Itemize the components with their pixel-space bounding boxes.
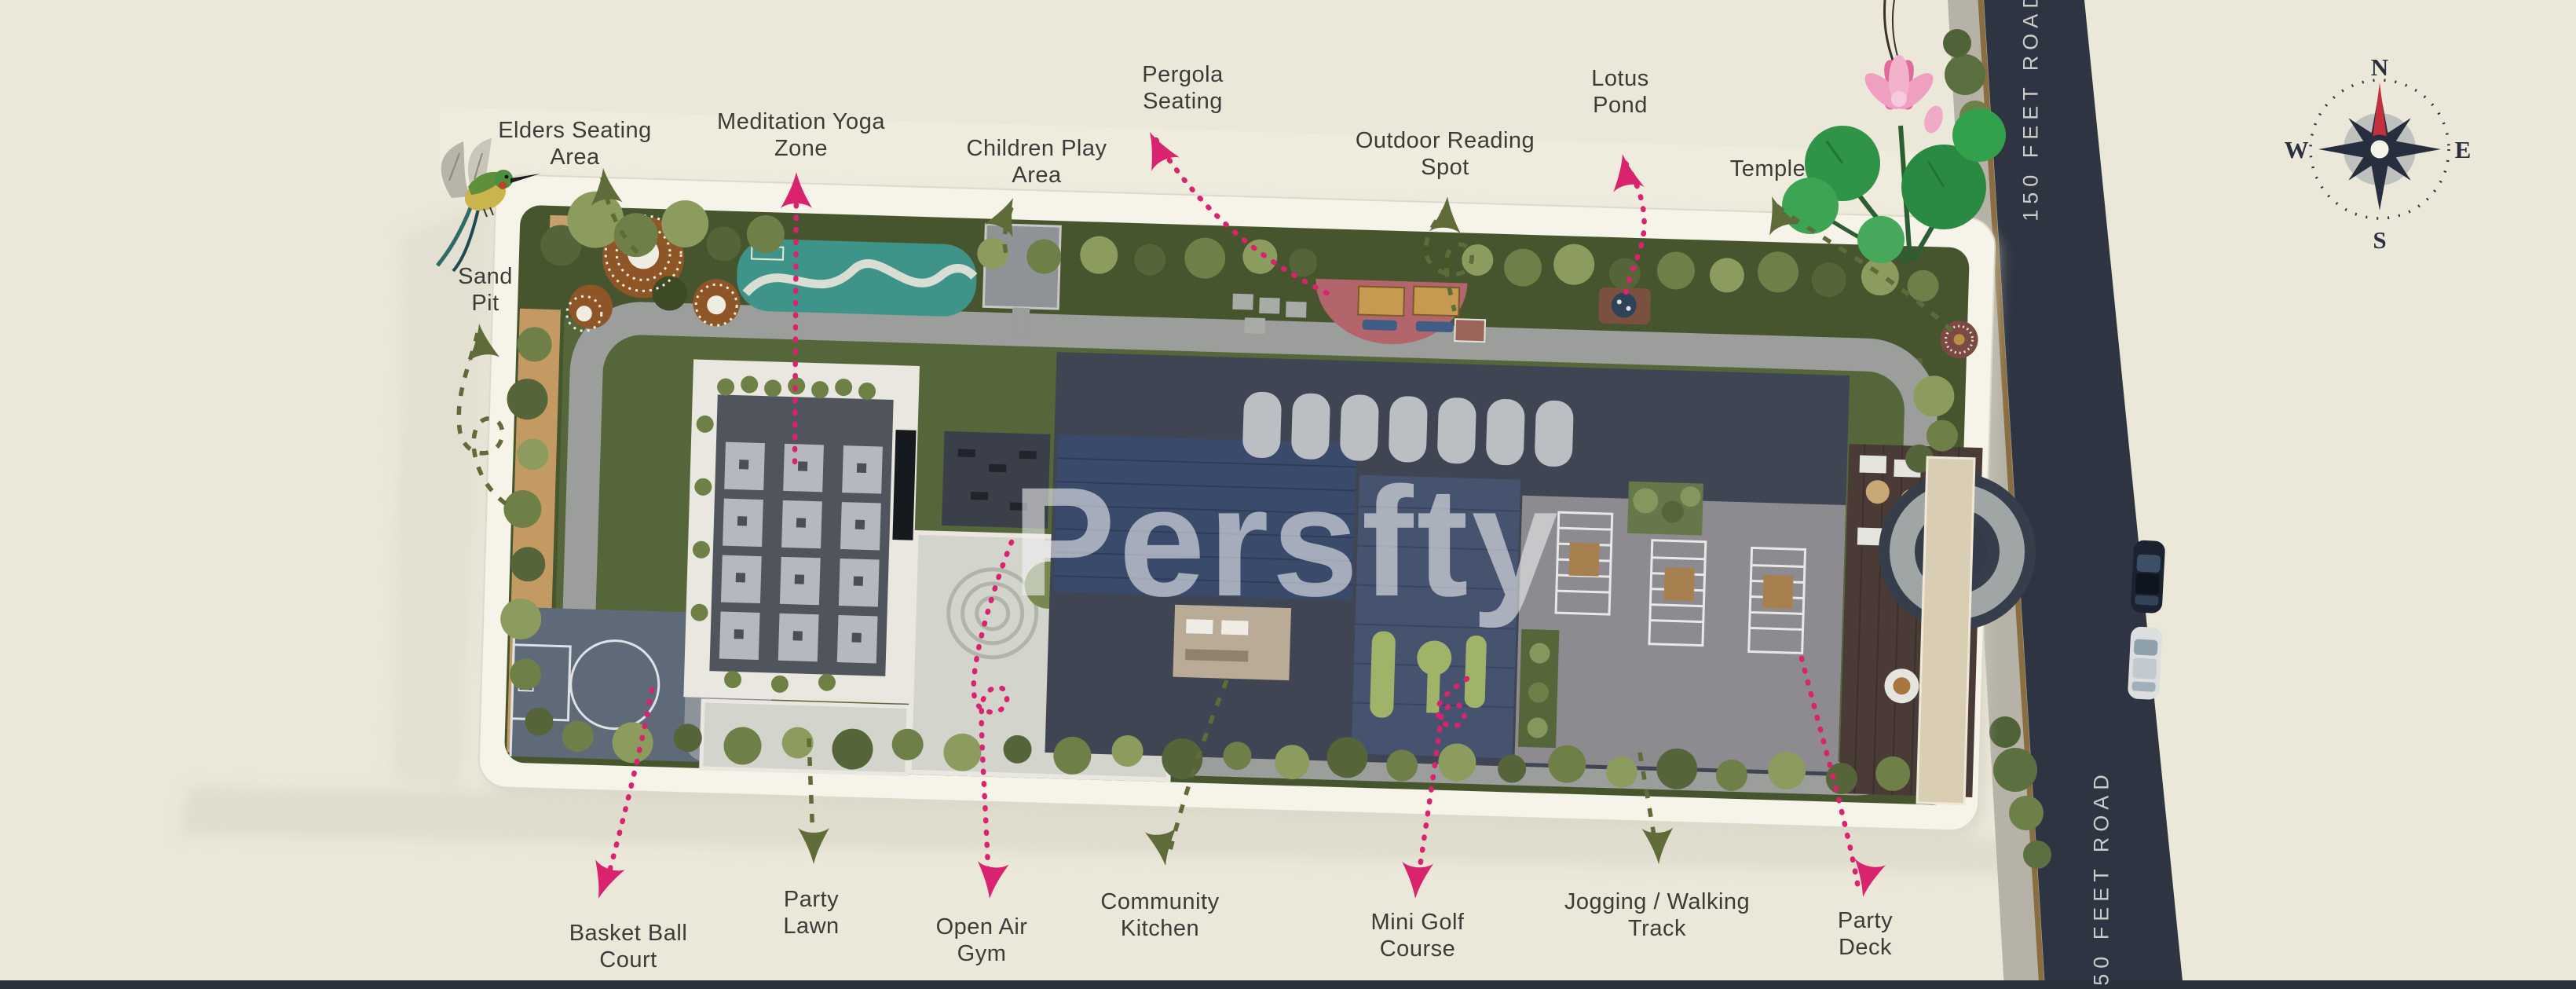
- label-line: Party: [783, 886, 839, 913]
- compass-w: W: [2285, 136, 2309, 163]
- label-line: Area: [498, 144, 652, 170]
- label-elders-seating-area: Elders Seating Area: [498, 117, 652, 170]
- label-party-lawn: Party Lawn: [783, 886, 839, 940]
- master-plan-page: Persfty N E S W: [0, 0, 2576, 989]
- label-meditation-yoga-zone: Meditation Yoga Zone: [717, 108, 885, 162]
- road-label-bottom: 150 FEET ROAD: [2090, 769, 2114, 989]
- label-sand-pit: Sand Pit: [458, 263, 513, 317]
- label-line: Course: [1371, 936, 1465, 962]
- label-basket-ball-court: Basket Ball Court: [569, 920, 688, 973]
- label-pergola-seating: Pergola Seating: [1142, 61, 1223, 115]
- label-line: Pond: [1591, 92, 1648, 119]
- label-line: Elders Seating: [498, 117, 652, 144]
- label-children-play-area: Children Play Area: [967, 135, 1107, 189]
- bottom-border: [0, 980, 2576, 989]
- label-line: Meditation Yoga: [717, 108, 885, 135]
- site-plan-canvas: Persfty N E S W: [0, 0, 2576, 989]
- label-lotus-pond: Lotus Pond: [1591, 65, 1648, 119]
- label-line: Area: [967, 162, 1107, 189]
- label-line: Pergola: [1142, 61, 1223, 88]
- label-party-deck: Party Deck: [1838, 907, 1893, 961]
- label-outdoor-reading-spot: Outdoor Reading Spot: [1356, 127, 1535, 181]
- label-line: Party: [1838, 907, 1893, 934]
- compass-n: N: [2371, 53, 2388, 81]
- entrance-canopy: [1917, 457, 1974, 804]
- label-line: Kitchen: [1100, 915, 1219, 942]
- label-mini-golf-course: Mini Golf Course: [1371, 909, 1465, 962]
- label-community-kitchen: Community Kitchen: [1100, 888, 1219, 942]
- label-line: Jogging / Walking: [1564, 888, 1750, 915]
- road-label-top: 150 FEET ROAD: [2019, 0, 2044, 222]
- label-line: Lotus: [1591, 65, 1648, 92]
- louvre-strip: [892, 430, 916, 540]
- play-area-path: [1012, 307, 1030, 335]
- developer-watermark: Persfty: [1012, 455, 1561, 628]
- label-line: Lawn: [783, 913, 839, 940]
- label-line: Mini Golf: [1371, 909, 1465, 936]
- label-line: Pit: [458, 290, 513, 317]
- label-line: Zone: [717, 135, 885, 162]
- label-line: Outdoor Reading: [1356, 127, 1535, 154]
- label-line: Temple: [1730, 156, 1806, 182]
- label-temple: Temple: [1730, 156, 1806, 182]
- car-white: [2128, 626, 2163, 700]
- outdoor-reading-spot-feature: [1454, 319, 1485, 342]
- label-line: Court: [569, 947, 688, 973]
- label-line: Community: [1100, 888, 1219, 915]
- label-line: Seating: [1142, 88, 1223, 115]
- label-line: Gym: [936, 940, 1028, 967]
- label-line: Track: [1564, 915, 1750, 942]
- label-line: Basket Ball: [569, 920, 688, 947]
- label-line: Open Air: [936, 914, 1028, 940]
- label-jogging-walking-track: Jogging / Walking Track: [1564, 888, 1750, 942]
- left-building: [683, 359, 920, 703]
- label-open-air-gym: Open Air Gym: [936, 914, 1028, 967]
- compass-e: E: [2455, 136, 2472, 163]
- label-line: Spot: [1356, 154, 1535, 181]
- paver-terrace: [1514, 496, 1846, 772]
- label-line: Children Play: [967, 135, 1107, 162]
- label-line: Sand: [458, 263, 513, 290]
- label-line: Deck: [1838, 934, 1893, 961]
- car-dark: [2131, 540, 2166, 614]
- compass-s: S: [2373, 226, 2386, 254]
